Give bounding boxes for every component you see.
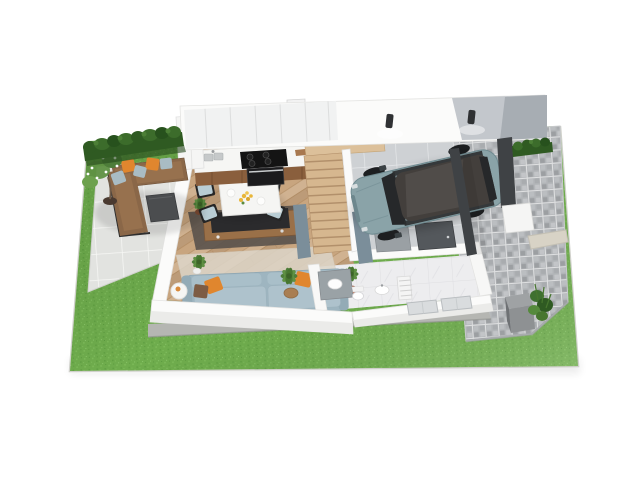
front-window: [441, 296, 472, 311]
door-handle-icon: [447, 236, 450, 239]
front-window: [407, 300, 438, 315]
faucet-icon: [212, 150, 215, 153]
carport-roof-edge: [500, 95, 547, 140]
vanity-sink: [328, 279, 342, 289]
burner-icon: [265, 159, 271, 165]
outdoor-pillow-grey: [160, 157, 173, 169]
ceiling-lamp-icon: [385, 114, 393, 129]
towel-radiator: [397, 276, 412, 300]
toilet: [352, 286, 364, 300]
cooktop: [240, 149, 288, 169]
table-decor: [176, 287, 181, 292]
decor-item: [216, 235, 219, 238]
bathroom-basin: [375, 286, 389, 295]
plant-basket: [284, 288, 298, 298]
plant-pot: [193, 268, 201, 274]
plate: [227, 189, 235, 197]
sofa-pillow-brown: [193, 284, 209, 299]
burner-icon: [247, 154, 253, 160]
lamp-glow: [377, 129, 403, 139]
outdoor-pillow-orange: [145, 157, 160, 171]
cutting-board: [295, 149, 306, 156]
decor-item: [280, 229, 283, 232]
burner-icon: [249, 161, 255, 167]
floor-plan-svg: [0, 0, 640, 480]
burner-icon: [263, 152, 269, 158]
floor-plan-render: [0, 0, 640, 480]
ceiling-lamp-icon: [467, 110, 475, 125]
faucet-icon: [381, 284, 383, 286]
plate: [257, 197, 265, 205]
lamp-glow: [459, 125, 485, 135]
low-wall: [502, 203, 534, 233]
